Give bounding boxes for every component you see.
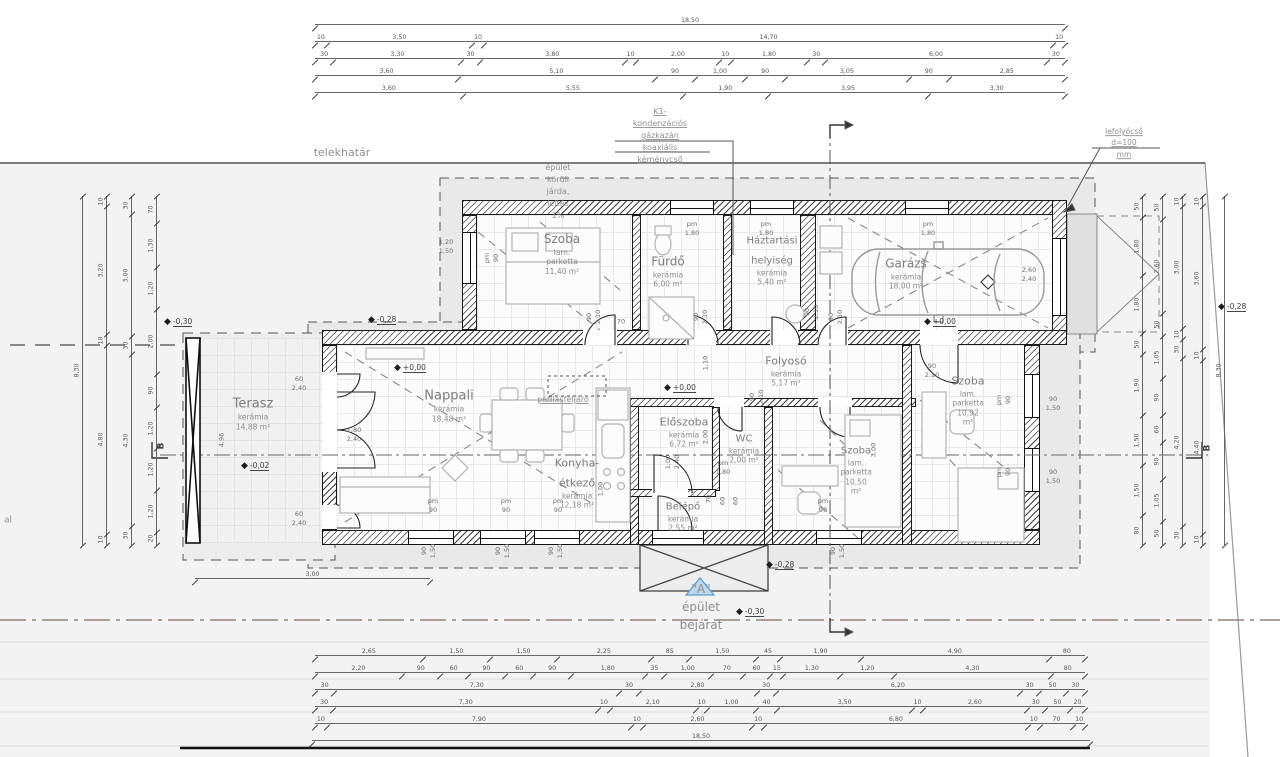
dimension-value: 30 xyxy=(1026,682,1034,689)
room-floor-material: lam. parketta xyxy=(840,458,872,477)
level-marker: ◆+0,00 xyxy=(394,363,426,373)
dimension-value: 90 xyxy=(482,665,490,672)
room-label: Fürdőkerámia6,00 m² xyxy=(651,251,685,290)
dimension-value: 2,00 xyxy=(148,335,155,349)
dimension-tag: 90 2,10 xyxy=(925,362,939,380)
dimension-value: 10 xyxy=(1030,716,1038,723)
annotation: padlásfeljáró xyxy=(537,394,588,406)
dimension-segment: 5,10 xyxy=(458,65,655,76)
dimension-segment: 2,85 xyxy=(949,65,1065,76)
dimension-tag: pm 90 xyxy=(995,395,1013,405)
dimension-tag: 90 2,10 xyxy=(827,310,845,324)
dimension-segment: 1,20 xyxy=(146,491,157,533)
dimension-segment: 15 xyxy=(770,662,783,673)
dimension-chain: 701,301,202,00901,201,201,2020 xyxy=(146,196,157,545)
dimension-value: 6,00 xyxy=(929,51,943,58)
room-area: 14,88 m² xyxy=(233,422,274,431)
dimension-value: 2,85 xyxy=(1000,68,1014,75)
dimension-value: 1,05 xyxy=(1154,351,1161,365)
dimension-value: 1,80 xyxy=(762,51,776,58)
dimension-tag: pm 90 xyxy=(428,497,438,515)
level-diamond-icon: ◆ xyxy=(368,316,375,325)
dimension-chain: 18,50 xyxy=(315,14,1065,25)
dimension-value: 90 xyxy=(548,665,556,672)
dimension-tag: pm 90 xyxy=(553,497,563,515)
dimension-segment: 90 xyxy=(468,662,506,673)
dimension-value: 7,30 xyxy=(459,699,473,706)
room-area: 11,40 m² xyxy=(544,267,580,276)
level-diamond-icon: ◆ xyxy=(736,608,743,617)
dimension-value: 1,00 xyxy=(681,665,695,672)
dimension-segment: 10 xyxy=(696,696,707,707)
dimension-value: 1,50 xyxy=(517,648,531,655)
level-marker: ◆+0,00 xyxy=(924,317,956,327)
dimension-segment: 10 xyxy=(1053,31,1065,42)
dimension-chain: 103,20104,8010 xyxy=(96,196,107,545)
room-name: Fürdő xyxy=(651,255,685,269)
dimension-value: 30 xyxy=(321,682,329,689)
dimension-tag: pm 1,80 xyxy=(759,220,773,238)
dimension-tag: 90 2,10 xyxy=(692,310,710,324)
room-label: Folyosókerámia5,17 m² xyxy=(765,350,806,389)
room-label: Belépőkerámia2,55 m² xyxy=(666,495,700,534)
dimension-segment: 1,05 xyxy=(1152,337,1163,379)
dimension-tag: 90 2,10 xyxy=(585,310,603,324)
dimension-segment: 50 xyxy=(1039,679,1066,690)
dimension-value: 2,80 xyxy=(691,682,705,689)
dimension-value: 70 xyxy=(723,665,731,672)
dimension-value: 30 xyxy=(812,51,820,58)
floor-plan-page: Szobalam. parketta11,40 m²Fürdőkerámia6,… xyxy=(0,0,1280,757)
dimension-chain: 307,30102,10101,00403,50102,60305020 xyxy=(315,696,1085,707)
dimension-segment: 90 xyxy=(745,65,785,76)
dimension-value: 3,60 xyxy=(380,68,394,75)
dimension-value: 2,60 xyxy=(1154,259,1161,273)
dimension-chain: 8,30 xyxy=(72,196,83,545)
dimension-chain: 303,30303,80102,00101,80306,0030 xyxy=(315,48,1065,59)
dimension-value: 1,05 xyxy=(1154,493,1161,507)
dimension-segment: 10 xyxy=(1192,534,1203,545)
dimension-value: 2,60 xyxy=(690,716,704,723)
level-value: +0,00 xyxy=(403,363,426,373)
dimension-segment: 1,50 xyxy=(423,645,490,656)
dimension-tag: 90 1,50 xyxy=(420,544,438,558)
room-floor-material: kerámia xyxy=(765,370,806,379)
dimension-segment: 10 xyxy=(598,696,609,707)
room-name: Garázs xyxy=(885,257,927,271)
room-name: Folyosó xyxy=(765,355,806,368)
dimension-segment: 30 xyxy=(619,679,638,690)
dimension-value: 50 xyxy=(1133,203,1140,211)
dimension-tag: 1,00 2,40 xyxy=(664,455,682,469)
dimension-value: 20 xyxy=(1074,699,1082,706)
dimension-segment: 80 xyxy=(1051,662,1086,673)
dimension-segment: 80 xyxy=(1132,515,1143,545)
dimension-segment: 60 xyxy=(1152,416,1163,443)
dimension-tag: pm 1,80 xyxy=(921,220,935,238)
dimension-segment: 10 xyxy=(625,48,636,59)
dimension-value: 3,60 xyxy=(382,85,396,92)
dimension-segment: 1,80 xyxy=(731,48,807,59)
dimension-segment: 4,20 xyxy=(1172,358,1183,526)
dimension-value: 1,80 xyxy=(1134,239,1141,253)
dimension-segment: 7,90 xyxy=(327,713,631,724)
dimension-segment: 30 xyxy=(1172,527,1183,546)
dimension-value: 10 xyxy=(1193,197,1200,205)
dimension-segment: 50 xyxy=(1152,521,1163,545)
dimension-segment: 1,20 xyxy=(840,662,894,673)
dimension-tag: 90 1,50 xyxy=(494,544,512,558)
dimension-segment: 1,80 xyxy=(571,662,645,673)
level-diamond-icon: ◆ xyxy=(241,462,248,471)
dimension-segment: 45 xyxy=(756,645,780,656)
room-area: 18,48 m² xyxy=(424,414,473,423)
dimension-value: 1,30 xyxy=(148,238,155,252)
dimension-value: 14,70 xyxy=(760,34,778,41)
dimension-value: 4,30 xyxy=(965,665,979,672)
level-value: -0,28 xyxy=(775,560,794,570)
dimension-segment: 2,60 xyxy=(1152,220,1163,313)
dimension-value: 3,05 xyxy=(840,68,854,75)
dimension-segment: 30 xyxy=(461,48,479,59)
dimension-segment: 10 xyxy=(472,31,484,42)
dimension-value: 20 xyxy=(147,535,154,543)
dimension-segment: 10 xyxy=(1028,713,1040,724)
dimension-segment: 7,30 xyxy=(333,696,598,707)
dimension-chain: 303,00304,3030 xyxy=(121,196,132,545)
dimension-segment: 2,25 xyxy=(557,645,651,656)
dimension-chain: 501,801,80501,901,501,5080 xyxy=(1132,196,1143,545)
dimension-segment: 4,30 xyxy=(121,355,132,527)
dimension-value: 60 xyxy=(1153,425,1160,433)
dimension-segment: 1,50 xyxy=(490,645,557,656)
dimension-value: 5,10 xyxy=(549,68,563,75)
dimension-segment: 10 xyxy=(1172,196,1183,207)
dimension-tag: 60 xyxy=(718,497,727,505)
dimension-value: 6,80 xyxy=(889,716,903,723)
dimension-value: 4,80 xyxy=(98,433,105,447)
dimension-value: 30 xyxy=(1173,532,1180,540)
dimension-chain: 307,30302,80306,20305030 xyxy=(315,679,1085,690)
dimension-value: 35 xyxy=(650,665,658,672)
room-label: WCkerámia2,00 m² xyxy=(729,427,759,466)
dimension-segment: 30 xyxy=(757,679,776,690)
dimension-segment: 30 xyxy=(121,527,132,545)
dimension-value: 1,50 xyxy=(1134,434,1141,448)
room-floor-material: kerámia xyxy=(729,447,759,456)
dimension-value: 10 xyxy=(317,34,325,41)
dimension-value: 30 xyxy=(122,201,129,209)
dimension-value: 50 xyxy=(1153,321,1160,329)
room-name: Háztartási helyiség xyxy=(746,236,797,267)
dimension-value: 10 xyxy=(633,716,641,723)
dimension-value: 1,90 xyxy=(814,648,828,655)
dimension-tag: 90 1,50 xyxy=(1046,468,1060,486)
dimension-value: 1,50 xyxy=(449,648,463,655)
dimension-value: 4,90 xyxy=(948,648,962,655)
dimension-segment: 30 xyxy=(807,48,825,59)
dimension-segment: 1,05 xyxy=(1152,479,1163,521)
dimension-value: 2,25 xyxy=(597,648,611,655)
dimension-segment: 6,20 xyxy=(776,679,1020,690)
dimension-chain: 8,30 xyxy=(1214,196,1225,545)
dimension-value: 4,40 xyxy=(1194,440,1201,454)
dimension-tag: 1,80 2,40 xyxy=(347,426,361,444)
level-diamond-icon: ◆ xyxy=(924,318,931,327)
dimension-value: 4,20 xyxy=(1174,435,1181,449)
dimension-value: 60 xyxy=(515,665,523,672)
dimension-tag: 90 1,50 xyxy=(829,544,847,558)
room-label: Szobalam. parketta11,40 m² xyxy=(544,228,580,276)
dimension-segment: 3,00 xyxy=(1172,207,1183,329)
dimension-value: 90 xyxy=(1153,393,1160,401)
dimension-value: 10 xyxy=(1173,197,1180,205)
dimension-value: 30 xyxy=(1032,699,1040,706)
dimension-segment: 50 xyxy=(1045,696,1070,707)
dimension-segment: 6,80 xyxy=(764,713,1028,724)
ceiling-cross-dashes xyxy=(345,218,1048,538)
dimension-value: 15 xyxy=(773,665,781,672)
dimension-value: 10 xyxy=(1055,34,1063,41)
dimension-segment: 30 xyxy=(1047,48,1065,59)
dimension-segment: 14,70 xyxy=(484,31,1053,42)
room-name: Nappali xyxy=(424,389,473,404)
dimension-value: 1,90 xyxy=(1134,378,1141,392)
dimension-value: 30 xyxy=(1173,345,1180,353)
dimension-segment: 70 xyxy=(1040,713,1074,724)
dimension-value: 1,50 xyxy=(1134,483,1141,497)
dimension-segment: 4,80 xyxy=(96,346,107,535)
dimension-segment: 10 xyxy=(96,196,107,207)
level-value: -0,30 xyxy=(173,317,192,327)
dimension-segment: 80 xyxy=(1049,645,1085,656)
dimension-value: 1,20 xyxy=(860,665,874,672)
level-diamond-icon: ◆ xyxy=(766,561,773,570)
car-icon xyxy=(852,242,1044,322)
dimension-value: 3,00 xyxy=(1174,261,1181,275)
dimension-segment: 90 xyxy=(146,374,157,407)
dimension-segment: 3,60 xyxy=(1192,207,1203,350)
dimension-segment: 30 xyxy=(1020,679,1039,690)
dimension-segment: 50 xyxy=(1152,196,1163,220)
dimension-segment: 3,30 xyxy=(928,82,1065,93)
dimension-segment: 90 xyxy=(402,662,440,673)
dimension-value: 50 xyxy=(1153,529,1160,537)
dimension-segment: 1,80 xyxy=(1132,217,1143,275)
room-area: 2,55 m² xyxy=(666,524,700,533)
dimension-segment: 10 xyxy=(1192,350,1203,361)
dimension-value: 45 xyxy=(764,648,772,655)
dimension-value: 40 xyxy=(763,699,771,706)
dimension-value: 3,30 xyxy=(390,51,404,58)
dimension-tag: 90 1,50 xyxy=(547,544,565,558)
dimension-tag: 70 xyxy=(704,495,713,503)
dimension-segment: 30 xyxy=(315,696,333,707)
dimension-tag: 2,00 xyxy=(701,430,710,444)
dimension-segment: 10 xyxy=(96,335,107,346)
dimension-segment: 10 xyxy=(719,48,730,59)
dimension-tag: B xyxy=(1202,445,1215,452)
dimension-tag: 90 2,10 xyxy=(748,390,766,404)
room-name: Szoba xyxy=(544,232,580,246)
dimension-segment: 2,60 xyxy=(643,713,753,724)
dimension-segment: 3,05 xyxy=(785,65,908,76)
dimension-value: 10 xyxy=(1193,351,1200,359)
level-value: -0,28 xyxy=(377,315,396,325)
dimension-chain: 2,2090609060901,80351,007060151,301,204,… xyxy=(315,662,1085,673)
dimension-value: 1,30 xyxy=(805,665,819,672)
dimension-value: 5,55 xyxy=(566,85,580,92)
room-label: Teraszkerámia14,88 m² xyxy=(233,393,274,432)
dimension-value: 90 xyxy=(925,68,933,75)
dimension-segment: 1,50 xyxy=(1132,466,1143,516)
dimension-value: 70 xyxy=(1052,716,1060,723)
dimension-value: 1,80 xyxy=(601,665,615,672)
dimension-segment: 30 xyxy=(121,196,132,214)
room-label: Szobalam. parketta10,50 m² xyxy=(840,438,872,496)
dimension-value: 85 xyxy=(666,648,674,655)
dimension-segment: 2,20 xyxy=(315,662,402,673)
dimension-value: 2,60 xyxy=(968,699,982,706)
room-name: Szoba xyxy=(951,374,984,387)
level-diamond-icon: ◆ xyxy=(164,318,171,327)
dimension-value: 1,20 xyxy=(148,421,155,435)
room-floor-material: kerámia xyxy=(651,271,685,280)
dimension-value: 30 xyxy=(122,342,129,350)
annotation: K1-kondenzációs gázkazán koaxiális kémén… xyxy=(633,106,687,166)
room-floor-material: kerámia xyxy=(666,515,700,524)
dimension-tag: pm 90 xyxy=(818,497,828,515)
dimension-segment: 50 xyxy=(1152,313,1163,337)
dimension-segment: 3,80 xyxy=(480,48,625,59)
dimension-value: 30 xyxy=(320,51,328,58)
dimension-segment: 10 xyxy=(912,696,923,707)
dimension-segment: 60 xyxy=(505,662,533,673)
dimension-chain: 107,90102,60106,80107010 xyxy=(315,713,1085,724)
dimension-segment: 4,90 xyxy=(861,645,1048,656)
dimension-segment: 20 xyxy=(1070,696,1085,707)
dimension-value: 10 xyxy=(474,34,482,41)
dimension-segment: 90 xyxy=(1152,379,1163,416)
dimension-chain: 3,00 xyxy=(195,568,430,579)
dimension-segment: 10 xyxy=(631,713,643,724)
dimension-segment: 10 xyxy=(752,713,764,724)
dimension-segment: 60 xyxy=(743,662,771,673)
room-floor-material: kerámia xyxy=(233,413,274,422)
dimension-segment: 7,30 xyxy=(334,679,619,690)
dimension-value: 30 xyxy=(1052,51,1060,58)
dimension-value: 10 xyxy=(698,699,706,706)
dimension-segment: 50 xyxy=(1132,334,1143,355)
dimension-value: 90 xyxy=(761,68,769,75)
dimension-value: 80 xyxy=(1133,526,1140,534)
dimension-value: 30 xyxy=(122,532,129,540)
dimension-value: 7,90 xyxy=(472,716,486,723)
dimension-tag: 1,20 1,50 xyxy=(439,238,453,256)
room-area: 5,17 m² xyxy=(765,379,806,388)
dimension-segment: 2,00 xyxy=(636,48,719,59)
dimension-tag: 70 xyxy=(617,317,625,326)
level-diamond-icon: ◆ xyxy=(394,364,401,373)
dimension-segment: 50 xyxy=(1132,196,1143,217)
room-name: Konyha-étkező xyxy=(555,457,600,490)
dimension-tag: 2,60 2,40 xyxy=(1022,266,1036,284)
center-marker xyxy=(981,275,995,289)
dimension-segment: 40 xyxy=(756,696,778,707)
level-diamond-icon: ◆ xyxy=(664,384,671,393)
annotation: al xyxy=(4,514,12,528)
dimension-value: 90 xyxy=(671,68,679,75)
dimension-segment: 1,50 xyxy=(1132,416,1143,466)
dimension-segment: 3,00 xyxy=(121,214,132,336)
room-area: 10,50 m² xyxy=(840,477,872,496)
dimension-tag: pm 90 xyxy=(483,253,501,263)
dimension-value: 10 xyxy=(1173,330,1180,338)
dimension-segment: 1,80 xyxy=(1132,275,1143,333)
dimension-tag: pm 90 xyxy=(501,497,511,515)
dimension-segment: 8,30 xyxy=(1214,196,1225,545)
dimension-value: 18,50 xyxy=(692,733,710,740)
dimension-tag: 60 xyxy=(731,497,740,505)
room-floor-material: kerámia xyxy=(746,269,797,278)
dimension-value: 3,80 xyxy=(545,51,559,58)
room-floor-material: kerámia xyxy=(885,273,927,282)
dimension-chain: 3,605,10901,00903,05902,85 xyxy=(315,65,1065,76)
dimension-value: 2,10 xyxy=(646,699,660,706)
dimension-chain: 2,651,501,502,25851,50451,904,9080 xyxy=(315,645,1085,656)
dimension-segment: 30 xyxy=(1172,340,1183,359)
dimension-segment: 1,30 xyxy=(146,223,157,268)
dimension-value: 1,20 xyxy=(148,282,155,296)
dimension-value: 10 xyxy=(1193,536,1200,544)
dimension-value: 50 xyxy=(1049,682,1057,689)
dimension-value: 3,50 xyxy=(392,34,406,41)
annotation: telekhatár xyxy=(314,145,371,162)
dimension-chain: 18,50 xyxy=(312,730,1090,741)
dimension-segment: 10 xyxy=(315,713,327,724)
dimension-value: 18,50 xyxy=(681,17,699,24)
dimension-segment: 2,60 xyxy=(923,696,1026,707)
dimension-value: 2,00 xyxy=(671,51,685,58)
dimension-value: 10 xyxy=(754,716,762,723)
annotation: épület körüli járda, lejtés 1% xyxy=(545,162,570,222)
dimension-tag: pm 1,80 xyxy=(716,459,730,477)
dimension-value: 1,00 xyxy=(724,699,738,706)
dimension-segment: 1,50 xyxy=(689,645,756,656)
dimension-segment: 30 xyxy=(315,48,333,59)
dimension-segment: 20 xyxy=(146,532,157,545)
dimension-segment: 10 xyxy=(1172,329,1183,340)
dimension-value: 7,30 xyxy=(470,682,484,689)
level-marker: ◆-0,02 xyxy=(241,461,269,471)
dimension-segment: 18,50 xyxy=(315,14,1065,25)
dimension-segment: 3,30 xyxy=(333,48,461,59)
dimension-segment: 90 xyxy=(655,65,695,76)
dimension-segment: 3,00 xyxy=(195,568,430,579)
annotation: lefolyócső d=100 mm xyxy=(1105,126,1143,160)
dimension-value: 50 xyxy=(1133,340,1140,348)
dimension-chain: 103,60104,4010 xyxy=(1192,196,1203,545)
dimension-value: 10 xyxy=(97,536,104,544)
dimension-chain: 103,501014,7010 xyxy=(315,31,1065,42)
room-floor-material: lam. parketta xyxy=(544,248,580,267)
dimension-value: 3,60 xyxy=(1194,271,1201,285)
dimension-value: 6,20 xyxy=(891,682,905,689)
dimension-segment: 3,60 xyxy=(315,65,458,76)
dimension-segment: 1,20 xyxy=(146,407,157,449)
dimension-value: 1,20 xyxy=(148,504,155,518)
dimension-value: 3,00 xyxy=(123,268,130,282)
